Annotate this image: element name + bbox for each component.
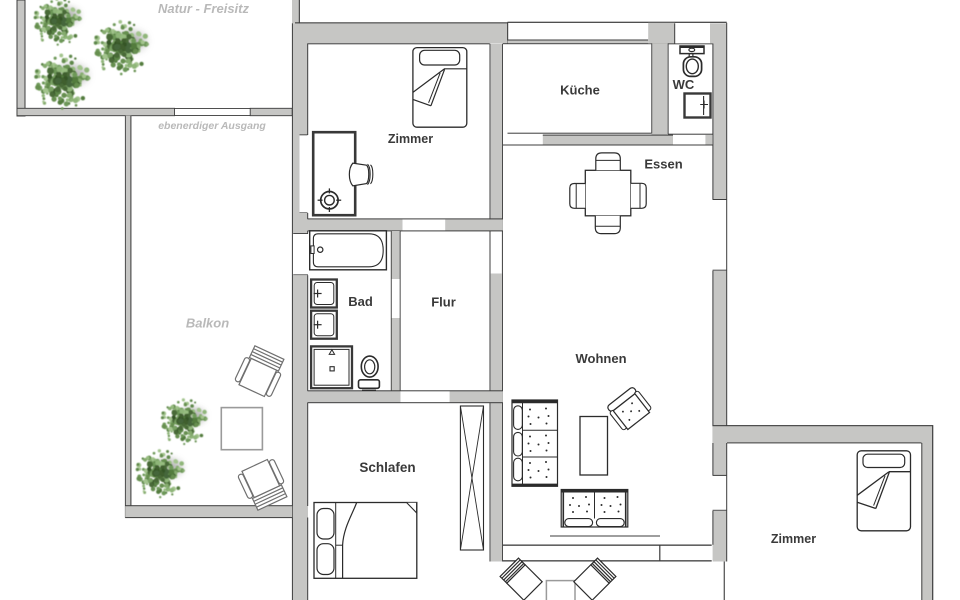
svg-text:Zimmer: Zimmer [771, 532, 816, 546]
svg-text:Zimmer: Zimmer [388, 132, 433, 146]
svg-text:Wohnen: Wohnen [575, 351, 626, 366]
svg-text:Schlafen: Schlafen [359, 460, 415, 475]
svg-text:Küche: Küche [560, 83, 600, 98]
svg-text:Essen: Essen [644, 156, 682, 171]
svg-text:Flur: Flur [431, 295, 456, 310]
svg-text:Natur - Freisitz: Natur - Freisitz [158, 1, 250, 16]
svg-text:Bad: Bad [348, 294, 373, 309]
svg-text:Balkon: Balkon [186, 315, 229, 330]
svg-text:ebenerdiger Ausgang: ebenerdiger Ausgang [158, 120, 266, 132]
svg-text:WC: WC [673, 77, 695, 92]
